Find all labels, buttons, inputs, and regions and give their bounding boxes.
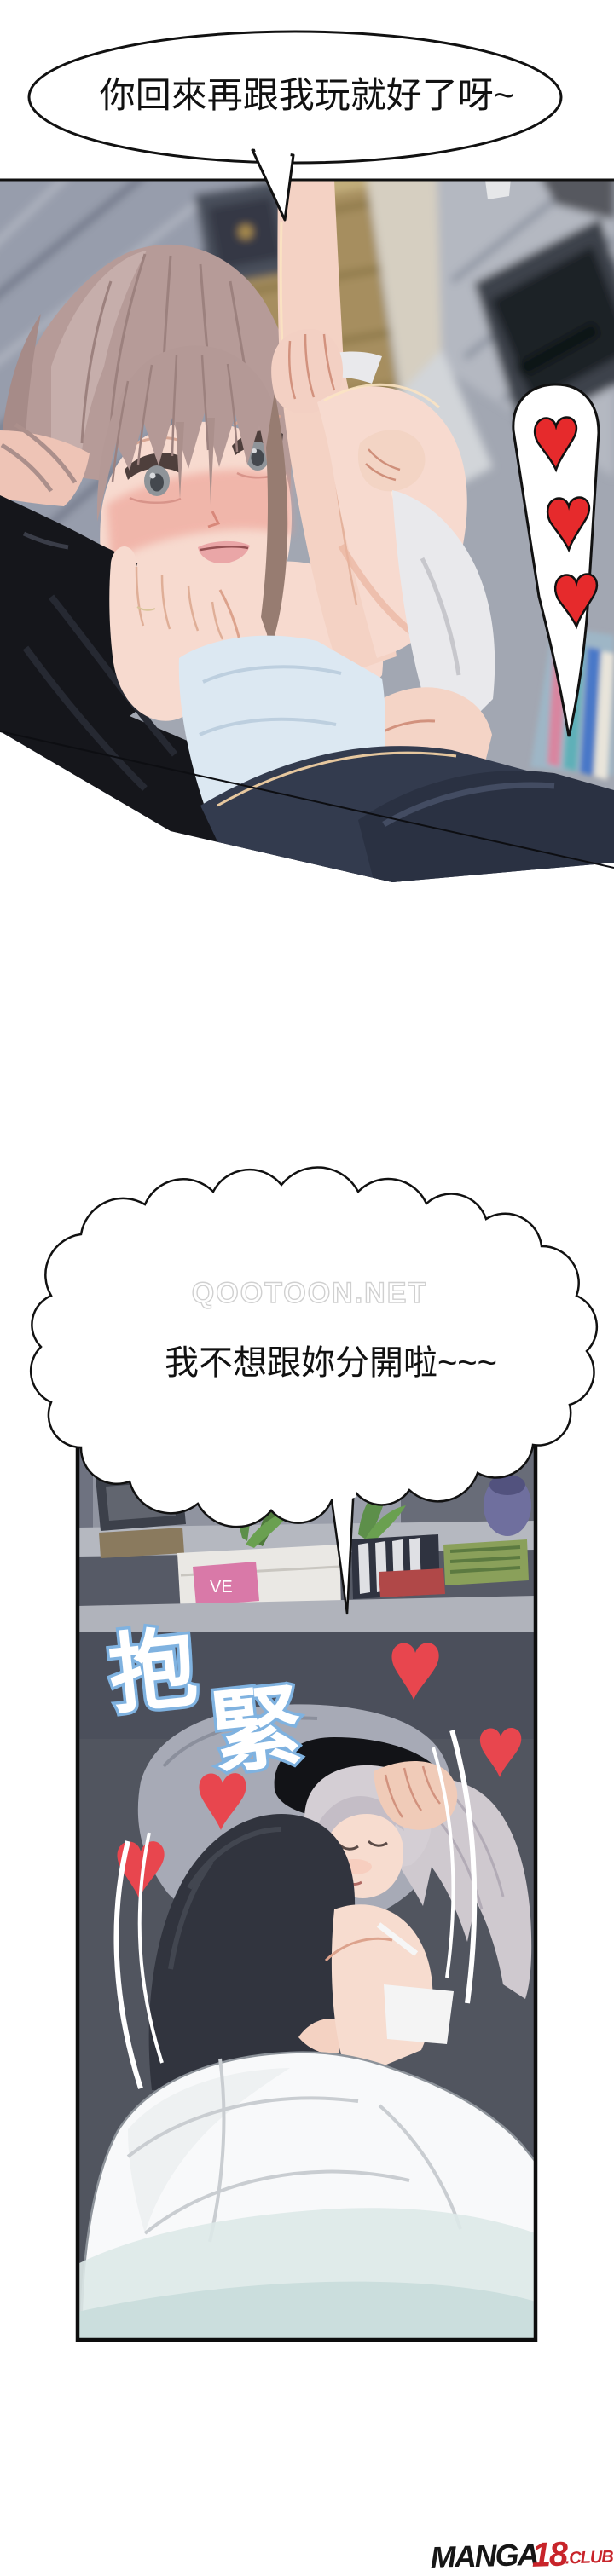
- svg-text:VE: VE: [210, 1578, 233, 1597]
- svg-text:QOOTOON.NET: QOOTOON.NET: [192, 1277, 427, 1309]
- svg-text:緊: 緊: [206, 1676, 307, 1785]
- svg-text:你回來再跟我玩就好了呀~: 你回來再跟我玩就好了呀~: [100, 75, 515, 115]
- svg-text:我不想跟妳分開啦~~~: 我不想跟妳分開啦~~~: [165, 1344, 497, 1382]
- svg-text:抱: 抱: [104, 1619, 200, 1724]
- svg-text:.CLUB: .CLUB: [565, 2548, 613, 2568]
- svg-text:MANGA: MANGA: [430, 2537, 538, 2575]
- svg-text:18: 18: [531, 2535, 570, 2573]
